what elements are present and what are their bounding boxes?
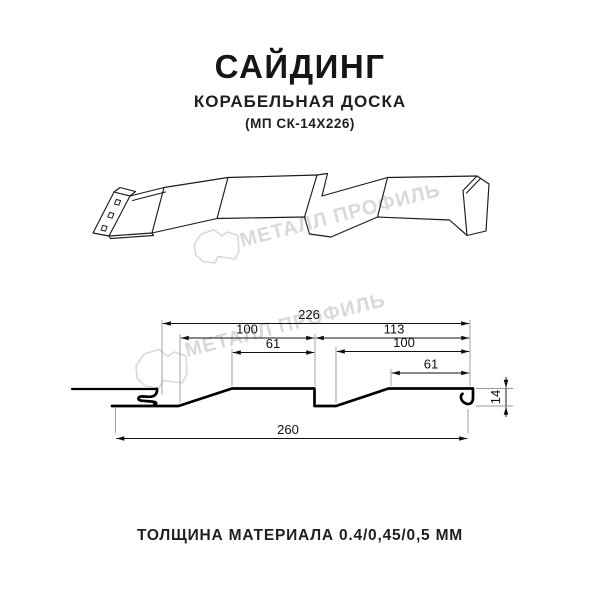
technical-drawing-area: МЕТАЛЛ ПРОФИЛЬ МЕТАЛЛ ПРОФИЛЬ bbox=[0, 150, 600, 470]
watermark-text-bottom: МЕТАЛЛ ПРОФИЛЬ bbox=[183, 289, 388, 362]
dimension-label: 100 bbox=[236, 322, 258, 337]
metall-profil-logo-icon bbox=[194, 230, 239, 263]
watermark-text-top: МЕТАЛЛ ПРОФИЛЬ bbox=[238, 179, 443, 252]
dimension-label: 14 bbox=[488, 390, 503, 404]
product-header: САЙДИНГ КОРАБЕЛЬНАЯ ДОСКА (МП СК-14Х226) bbox=[0, 50, 600, 131]
product-model-code: (МП СК-14Х226) bbox=[0, 116, 600, 131]
page-title: САЙДИНГ bbox=[0, 50, 600, 85]
dimension-label: 61 bbox=[266, 336, 280, 351]
profile-main-line bbox=[112, 389, 473, 407]
nail-hole-icon bbox=[108, 212, 114, 218]
dimension-100-right: 100 bbox=[337, 335, 469, 352]
siding-drawing-svg: МЕТАЛЛ ПРОФИЛЬ МЕТАЛЛ ПРОФИЛЬ bbox=[0, 150, 600, 465]
lock-curl bbox=[138, 389, 157, 405]
extension-lines bbox=[116, 320, 514, 434]
dimension-label: 61 bbox=[424, 357, 438, 372]
nail-strip bbox=[93, 192, 130, 236]
material-thickness-note: ТОЛЩИНА МАТЕРИАЛА 0.4/0,45/0,5 ММ bbox=[0, 527, 600, 545]
panel-1-face bbox=[228, 175, 317, 217]
dimension-label: 100 bbox=[393, 335, 415, 350]
lock-fold-edges bbox=[109, 188, 166, 239]
dimension-label: 226 bbox=[298, 307, 320, 322]
profile-cross-section bbox=[72, 389, 473, 407]
nail-hole-icon bbox=[115, 199, 121, 205]
right-end-fold bbox=[450, 176, 490, 236]
dimension-61-right: 61 bbox=[392, 357, 469, 374]
dimension-14: 14 bbox=[488, 377, 506, 417]
metall-profil-logo-icon bbox=[136, 350, 187, 389]
nail-hole-icon bbox=[101, 225, 107, 231]
dimension-label: 260 bbox=[277, 422, 299, 437]
watermark-bottom: МЕТАЛЛ ПРОФИЛЬ bbox=[136, 289, 388, 388]
dimension-226: 226 bbox=[163, 307, 469, 324]
product-subtitle: КОРАБЕЛЬНАЯ ДОСКА bbox=[0, 92, 600, 112]
dimension-260: 260 bbox=[116, 422, 467, 439]
watermark-top: МЕТАЛЛ ПРОФИЛЬ bbox=[194, 179, 443, 263]
